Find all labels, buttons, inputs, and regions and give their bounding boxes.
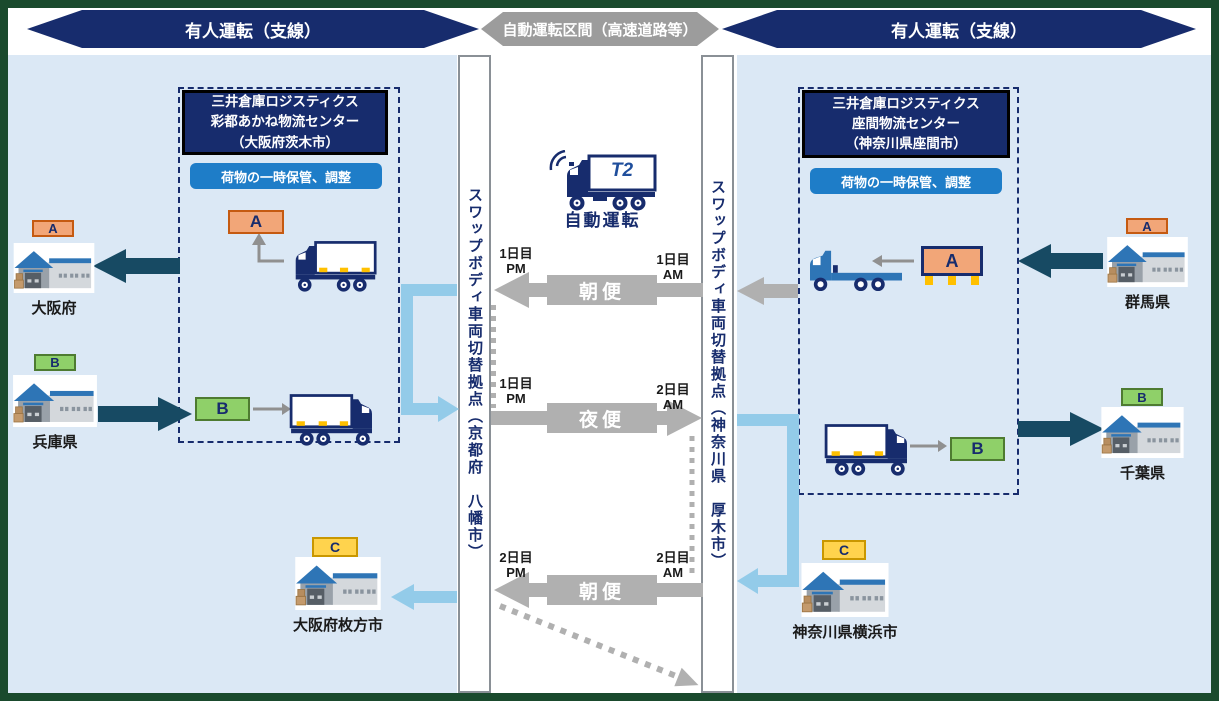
pickup-arrow-hyogo — [98, 397, 192, 431]
note-text: 荷物の一時保管、調整 — [841, 172, 971, 191]
cargo-tag-hyogo: B — [34, 354, 76, 371]
warehouse-hyogo: 兵庫県 — [10, 375, 100, 452]
hub-loop-right-arrow — [737, 420, 793, 594]
warehouse-name: 兵庫県 — [32, 431, 77, 452]
time-m2-left: 2日目 PM — [495, 551, 537, 581]
delivery-arrow-osaka — [93, 249, 180, 283]
time-m1-left: 1日目 PM — [495, 247, 537, 277]
center-title-text: 三井倉庫ロジスティクス 彩都あかね物流センター （大阪府茨木市） — [211, 92, 360, 153]
truck-left-a — [292, 237, 378, 293]
cargo-tag-gunma: A — [1126, 218, 1168, 234]
time-n1-left: 1日目 PM — [495, 377, 537, 407]
truck-left-b — [288, 390, 376, 447]
autonomous-section-banner: 自動運転区間（高速道路等） — [481, 12, 719, 46]
delivery-arrow-hirakata — [391, 584, 457, 610]
warehouse-name: 大阪府枚方市 — [293, 614, 383, 635]
swap-arrow-left-a — [252, 233, 284, 261]
banner-label: 有人運転（支線） — [185, 17, 321, 42]
warehouse-osaka: 大阪府 — [10, 243, 98, 318]
swap-body-b-left: B — [195, 397, 250, 421]
swap-body-a-left: A — [228, 210, 284, 234]
warehouse-icon — [800, 563, 890, 617]
cargo-tag-hirakata: C — [312, 537, 358, 557]
warehouse-gunma: 群馬県 — [1103, 237, 1192, 312]
service-label-night: 夜便 — [547, 403, 657, 433]
note-text: 荷物の一時保管、調整 — [221, 167, 351, 186]
diagram-canvas: 有人運転（支線） 自動運転区間（高速道路等） 有人運転（支線） スワップボディ車… — [0, 0, 1219, 701]
autonomous-driving-label: 自動運転 — [545, 206, 660, 231]
warehouse-chiba: 千葉県 — [1098, 407, 1187, 483]
cargo-tag-chiba: B — [1121, 388, 1163, 406]
warehouse-icon — [1103, 237, 1192, 287]
warehouse-icon — [10, 375, 100, 427]
delivery-arrow-chiba — [1018, 412, 1104, 446]
warehouse-name: 大阪府 — [31, 297, 76, 318]
service-label-morning1: 朝便 — [547, 275, 657, 305]
warehouse-yokohama: 神奈川県横浜市 — [800, 563, 890, 642]
cargo-tag-osaka: A — [32, 220, 74, 237]
right-center-title: 三井倉庫ロジスティクス 座間物流センター （神奈川県座間市） — [802, 90, 1010, 158]
warehouse-name: 千葉県 — [1120, 462, 1165, 483]
warehouse-name: 群馬県 — [1125, 291, 1170, 312]
swap-body-a-right: A — [921, 246, 983, 276]
manned-driving-banner-left: 有人運転（支線） — [27, 10, 479, 48]
warehouse-icon — [1098, 407, 1187, 458]
warehouse-icon — [10, 243, 98, 293]
swap-arrow-right-b — [910, 440, 947, 452]
time-m2-right: 2日目 AM — [650, 551, 696, 581]
feed-arrow-to-hub — [737, 277, 798, 305]
truck-right-b — [823, 420, 911, 477]
swap-arrow-left-b — [253, 403, 291, 415]
chassis-truck-right-a — [808, 246, 904, 292]
banner-label: 有人運転（支線） — [891, 17, 1027, 42]
cargo-tag-yokohama: C — [822, 540, 866, 560]
t2-logo: T2 — [598, 160, 646, 182]
warehouse-hirakata: 大阪府枚方市 — [293, 557, 383, 635]
time-m1-right: 1日目 AM — [650, 253, 696, 283]
hub-loop-left-arrow — [407, 290, 459, 422]
right-center-note: 荷物の一時保管、調整 — [810, 168, 1002, 194]
time-n1-right: 2日目 AM — [650, 383, 696, 413]
left-center-title: 三井倉庫ロジスティクス 彩都あかね物流センター （大阪府茨木市） — [182, 90, 388, 155]
left-center-note: 荷物の一時保管、調整 — [190, 163, 382, 189]
swap-body-legs — [921, 276, 983, 285]
warehouse-name: 神奈川県横浜市 — [793, 621, 898, 642]
pickup-arrow-gunma — [1018, 244, 1103, 278]
warehouse-icon — [293, 557, 383, 610]
center-title-text: 三井倉庫ロジスティクス 座間物流センター （神奈川県座間市） — [832, 94, 979, 155]
swap-body-b-right: B — [950, 437, 1005, 461]
dotted-diagonal-arrow — [500, 606, 702, 694]
manned-driving-banner-right: 有人運転（支線） — [722, 10, 1196, 48]
banner-label: 自動運転区間（高速道路等） — [502, 19, 697, 40]
service-label-morning2: 朝便 — [547, 575, 657, 605]
